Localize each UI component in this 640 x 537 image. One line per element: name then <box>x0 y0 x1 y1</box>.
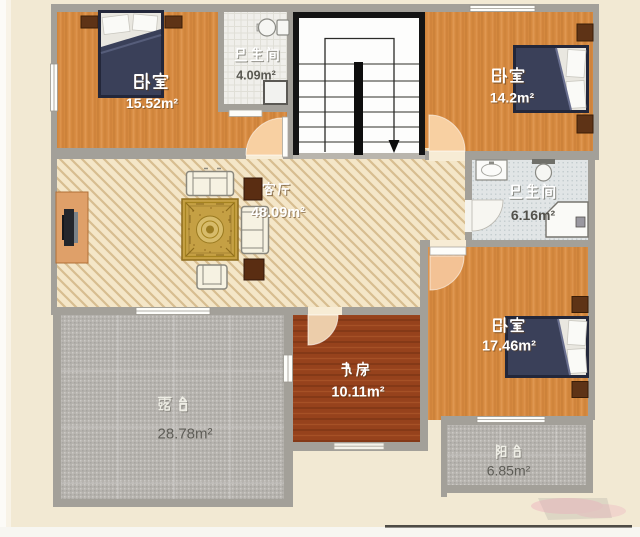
svg-text:28.78m²: 28.78m² <box>157 426 212 443</box>
svg-text:48.09m²: 48.09m² <box>251 205 305 221</box>
svg-text:14.2m²: 14.2m² <box>490 90 535 106</box>
svg-text:15.52m²: 15.52m² <box>126 95 178 111</box>
svg-text:6.16m²: 6.16m² <box>511 207 556 223</box>
svg-text:4.09m²: 4.09m² <box>236 69 276 83</box>
svg-text:6.85m²: 6.85m² <box>487 463 531 479</box>
svg-text:10.11m²: 10.11m² <box>331 385 384 401</box>
svg-text:17.46m²: 17.46m² <box>482 339 536 355</box>
